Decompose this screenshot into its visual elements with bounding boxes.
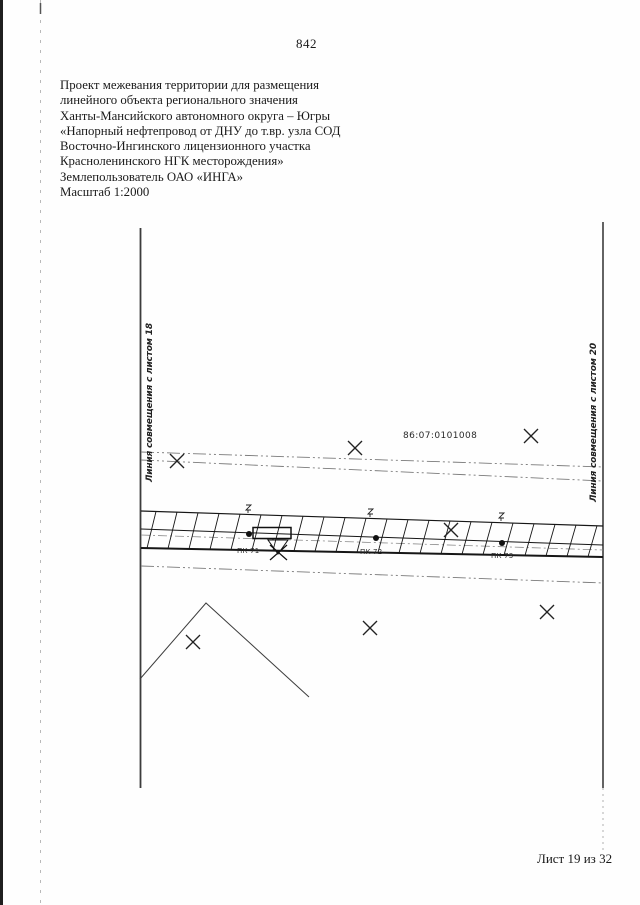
terrain-peak <box>140 603 309 697</box>
title-line: Ханты-Мансийского автономного округа – Ю… <box>60 109 440 124</box>
pk-point-73 <box>499 540 505 546</box>
pk-label-71: ПК 71 <box>237 547 259 555</box>
match-line-label-right: Линия совмещения с листом 20 <box>589 350 602 502</box>
page-edge-artifacts <box>2 0 41 905</box>
project-title-block: Проект межевания территории для размещен… <box>60 78 440 200</box>
boundary-line-upper <box>141 452 603 467</box>
boundary-line-below-band <box>141 566 603 583</box>
cadastral-boundary-lines <box>141 452 603 583</box>
title-line: линейного объекта регионального значения <box>60 93 440 108</box>
pk-point-71 <box>246 531 252 537</box>
x-mark <box>348 441 362 455</box>
title-line: Проект межевания территории для размещен… <box>60 78 440 93</box>
scale-line: Масштаб 1:2000 <box>60 185 440 200</box>
x-mark <box>540 605 554 619</box>
x-mark <box>186 635 200 649</box>
match-lines <box>141 222 604 850</box>
sheet-number: Лист 19 из 32 <box>537 851 612 867</box>
title-line: Красноленинского НГК месторождения» <box>60 154 440 169</box>
pk-label-72: ПК 72 <box>360 548 382 556</box>
pk-label-73: ПК 73 <box>491 552 513 560</box>
page-number: 842 <box>296 36 317 52</box>
title-line: Землепользователь ОАО «ИНГА» <box>60 170 440 185</box>
x-mark <box>363 621 377 635</box>
cadastral-quarter-number: 86:07:0101008 <box>403 431 477 441</box>
x-mark <box>444 523 458 537</box>
document-page: 842 Проект межевания территории для разм… <box>0 0 640 905</box>
boundary-line-lower <box>141 460 603 481</box>
terrain-lines <box>140 603 309 697</box>
match-line-label-left: Линия совмещения с листом 18 <box>145 332 158 482</box>
title-line: Восточно-Ингинского лицензионного участк… <box>60 139 440 154</box>
x-marks <box>170 429 554 649</box>
title-line: «Напорный нефтепровод от ДНУ до т.вр. уз… <box>60 124 440 139</box>
pk-point-72 <box>373 535 379 541</box>
x-mark <box>524 429 538 443</box>
